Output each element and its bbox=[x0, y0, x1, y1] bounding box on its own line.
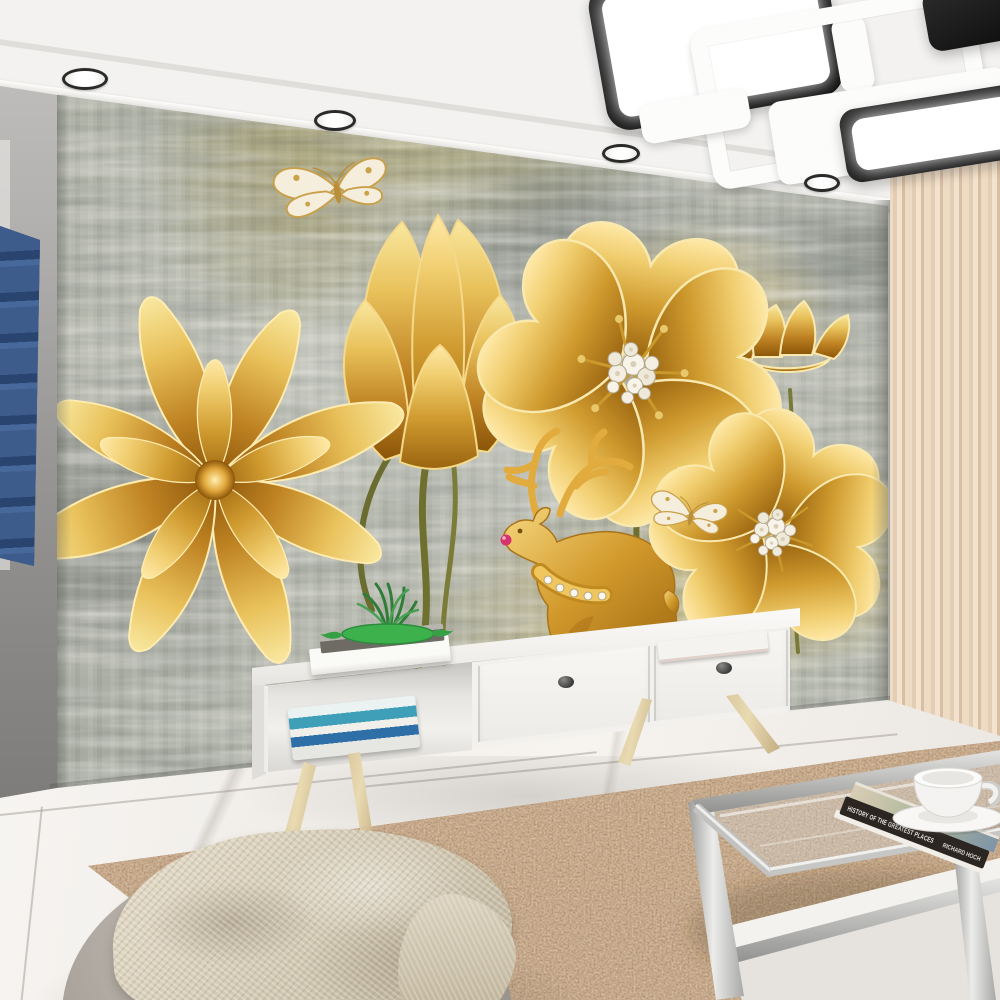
recessed-spotlight bbox=[602, 144, 640, 163]
leaf-dish bbox=[320, 624, 454, 644]
grass-plant bbox=[320, 584, 454, 644]
recessed-spotlight bbox=[62, 68, 108, 90]
led-panel bbox=[850, 94, 1000, 172]
recessed-spotlight bbox=[804, 174, 840, 192]
living-room-photo: HISTORY OF THE GREATEST PLACES RICHARD H… bbox=[0, 0, 1000, 1000]
recessed-spotlight bbox=[314, 110, 356, 131]
